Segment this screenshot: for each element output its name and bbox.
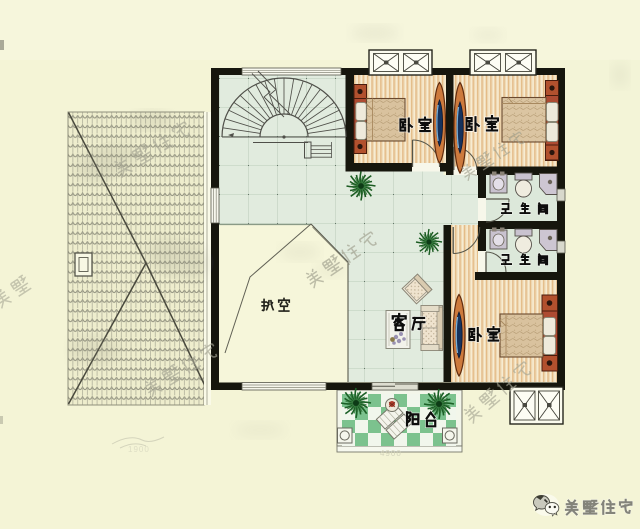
svg-text:4900: 4900 xyxy=(380,449,402,458)
svg-text:1900: 1900 xyxy=(128,445,150,454)
